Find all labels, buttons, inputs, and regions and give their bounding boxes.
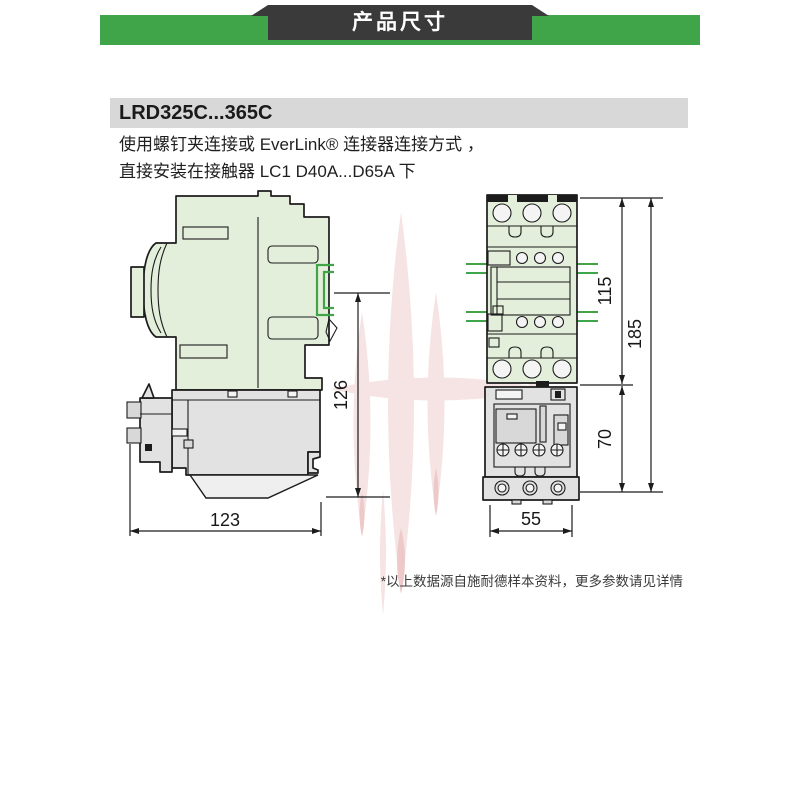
side-view-drawing: 126 123 [127, 191, 390, 536]
data-source-note: *以上数据源自施耐德样本资料，更多参数请见详情 [0, 570, 683, 590]
dim-label-front-upper: 115 [595, 277, 615, 306]
dim-label-front-width: 55 [521, 509, 541, 529]
dim-label-side-width: 123 [210, 510, 240, 530]
banner-ribbon: 产品尺寸 [268, 5, 532, 40]
dim-front-width: 55 [490, 505, 572, 537]
contactor-front-view [466, 195, 598, 383]
product-title: LRD325C...365C [119, 102, 272, 124]
dimension-drawing: 126 123 [0, 175, 800, 620]
product-title-bar: LRD325C...365C [110, 98, 688, 128]
contactor-side-view [131, 191, 337, 390]
dim-label-side-height: 126 [331, 380, 351, 410]
overload-relay-front-view [483, 381, 579, 504]
product-dimensions-page: 产品尺寸 LRD325C...365C 使用螺钉夹连接或 EverLink® 连… [0, 0, 800, 800]
ribbon-fold-left [251, 5, 268, 16]
front-view-drawing: 115 70 185 55 [466, 195, 663, 537]
banner-title: 产品尺寸 [352, 11, 448, 34]
overload-relay-side-view [127, 384, 320, 498]
description-line-1: 使用螺钉夹连接或 EverLink® 连接器连接方式 ， [119, 131, 484, 158]
dim-label-front-lower: 70 [595, 429, 615, 449]
dim-front-lower: 70 [595, 386, 625, 492]
dim-label-front-total: 185 [625, 319, 645, 349]
